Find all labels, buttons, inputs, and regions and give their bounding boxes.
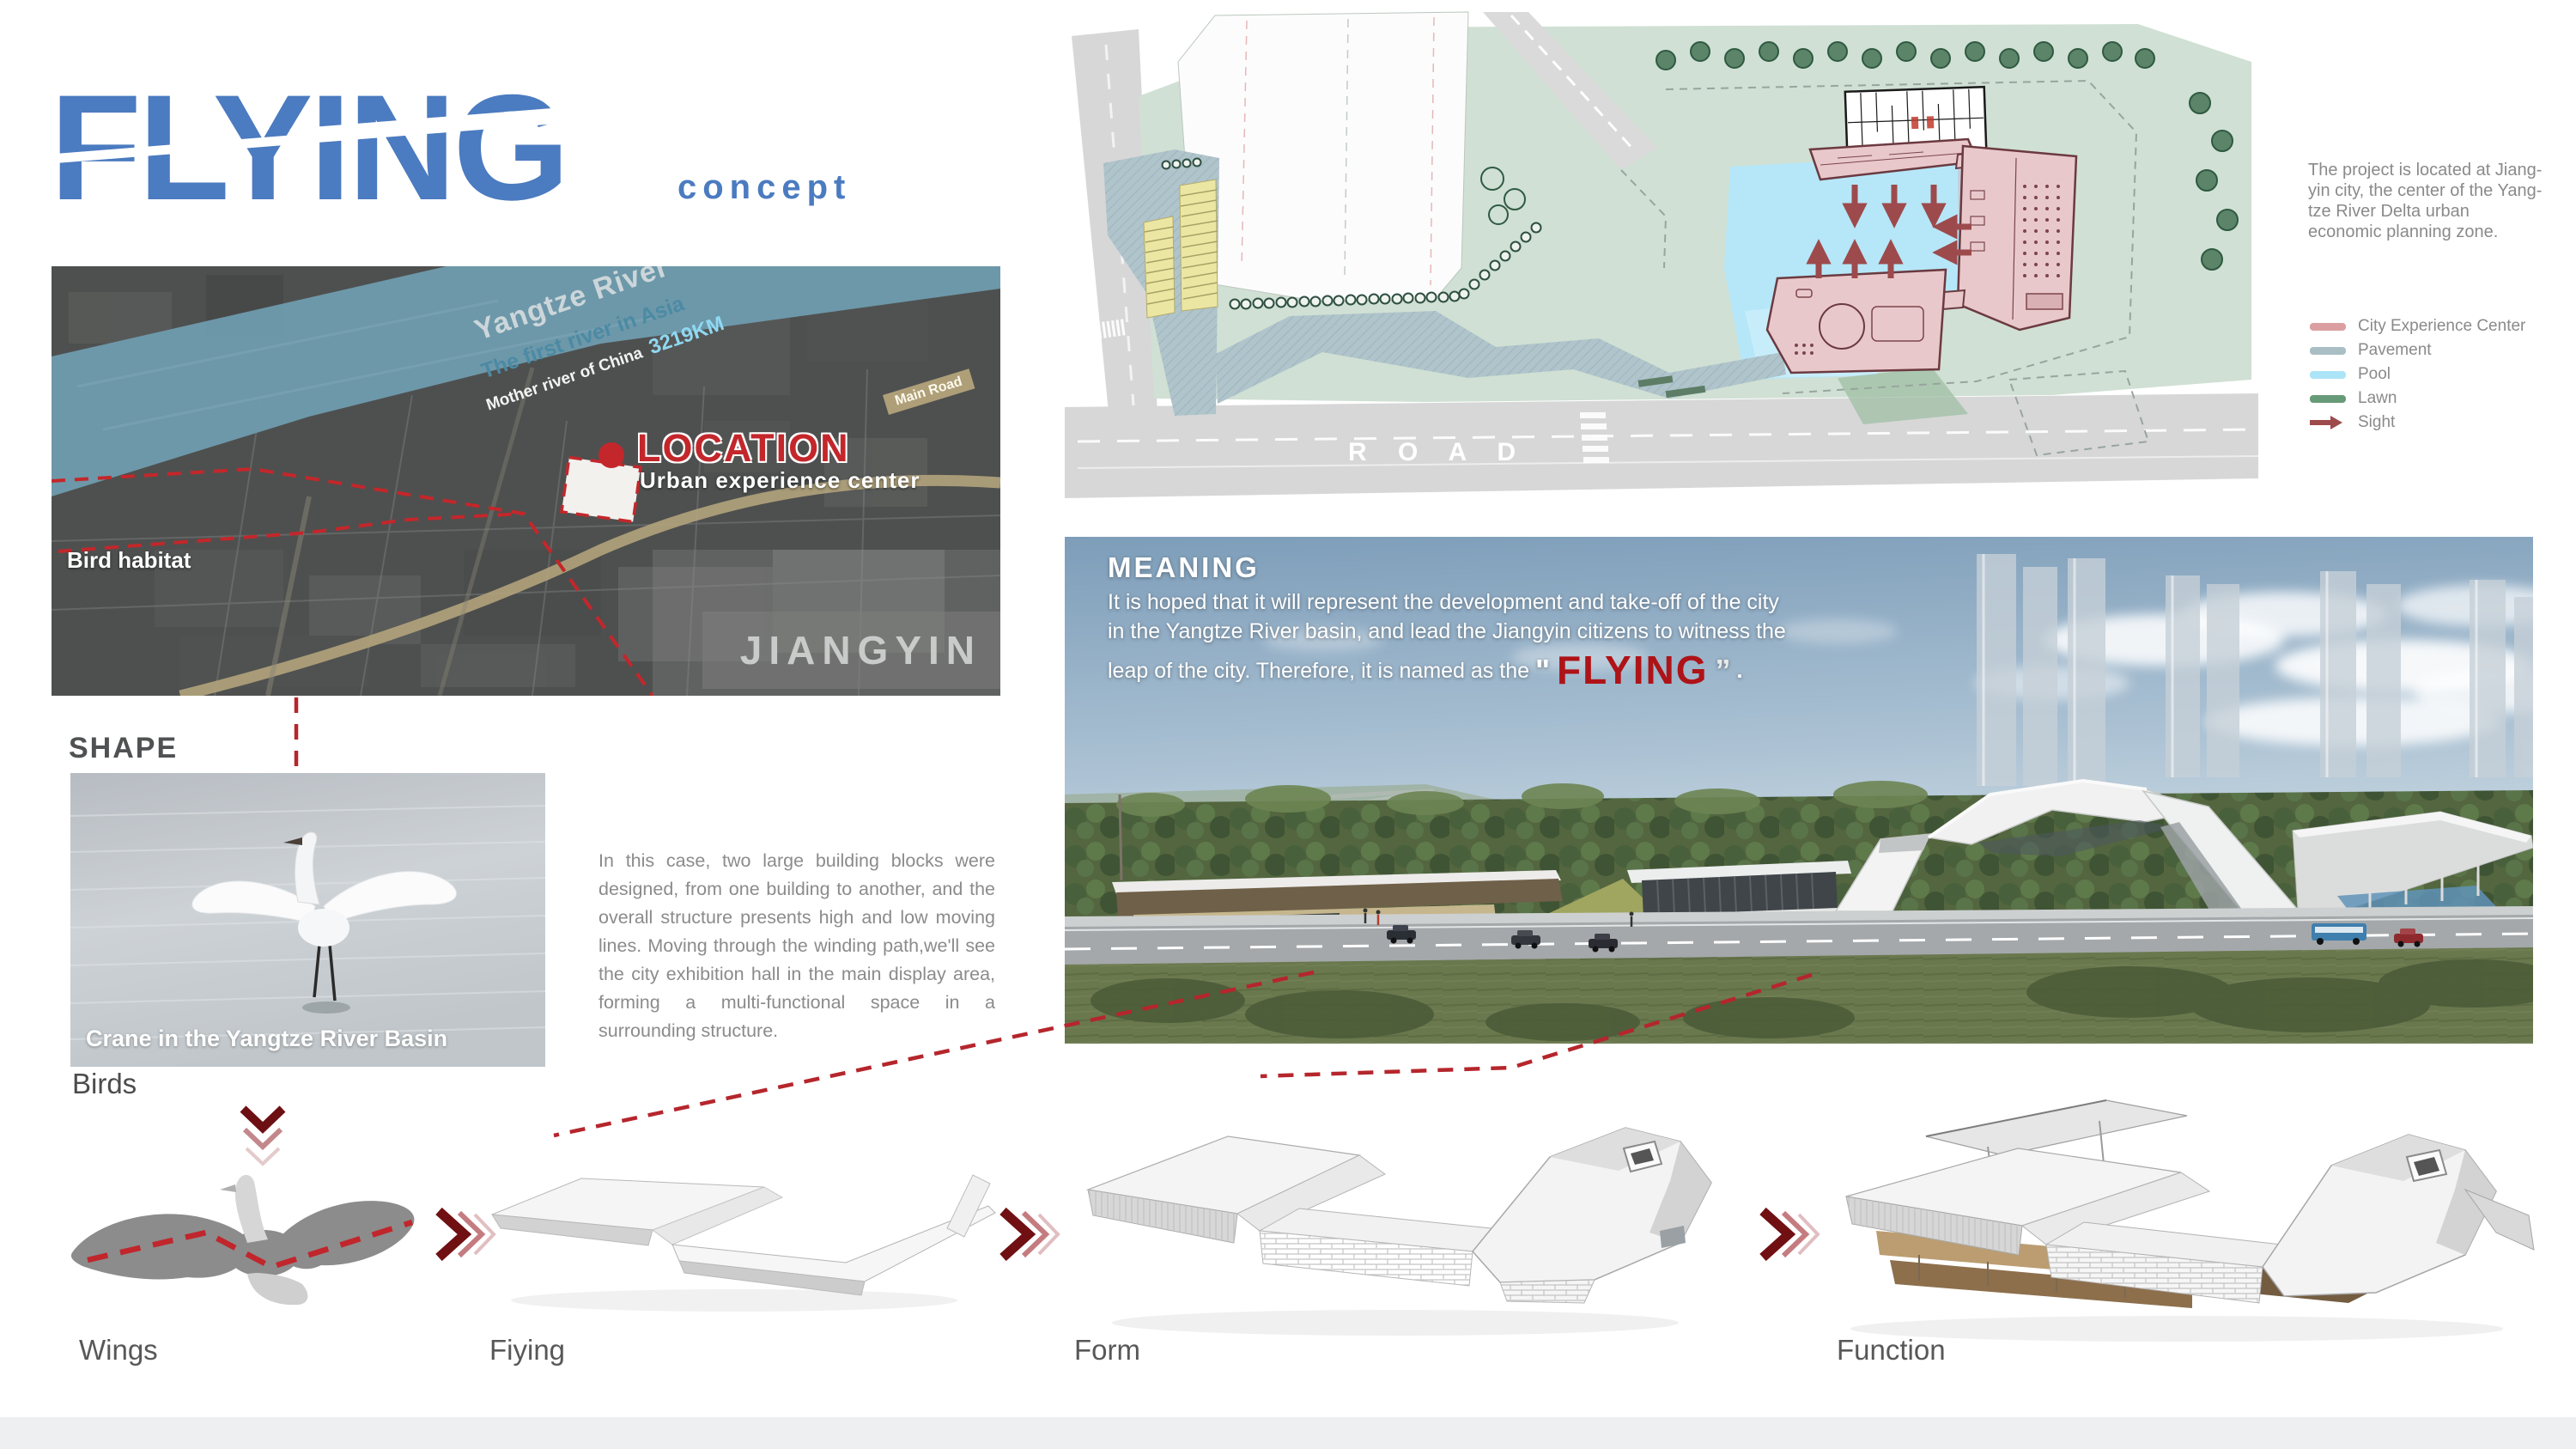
- chevron-right-icon: [996, 1201, 1063, 1268]
- logo-subtitle: concept: [677, 168, 851, 207]
- meaning-render: MEANING It is hoped that it will represe…: [1065, 537, 2533, 1044]
- city-name-badge: JIANGYIN: [702, 612, 1000, 689]
- location-title: LOCATION: [637, 426, 850, 471]
- courtyard: [1178, 12, 1468, 301]
- location-dot: [598, 442, 624, 468]
- poster-footer-strip: [0, 1417, 2576, 1449]
- legend-label: City Experience Center: [2358, 317, 2525, 336]
- site-plan-graphic: R O A D: [1065, 10, 2258, 510]
- legend-swatch: [2310, 347, 2346, 355]
- crane-photo-graphic: [70, 773, 545, 1067]
- legend-label: Pavement: [2358, 341, 2432, 360]
- south-road: [1065, 393, 2258, 498]
- step-label-function: Function: [1837, 1334, 1946, 1367]
- location-map: Yangtze River The first river in Asia Mo…: [52, 266, 1000, 696]
- flying-highlight: FLYING: [1557, 648, 1708, 692]
- meaning-line3: leap of the city. Therefore, it is named…: [1108, 647, 1742, 693]
- sight-arrow-icon: [2310, 416, 2346, 429]
- photo-caption: Crane in the Yangtze River Basin: [86, 1026, 537, 1052]
- sentence-period: .: [1736, 659, 1742, 683]
- legend-label: Lawn: [2358, 389, 2397, 408]
- legend-label: Pool: [2358, 365, 2391, 384]
- step-label-form: Form: [1074, 1334, 1140, 1367]
- shape-description: In this case, two large building blocks …: [598, 847, 995, 1045]
- location-subtitle: Urban experience center: [640, 467, 920, 494]
- meaning-line2: in the Yangtze River basin, and lead the…: [1108, 619, 1786, 644]
- shape-heading: SHAPE: [69, 732, 178, 765]
- site-marker-square: [562, 457, 641, 521]
- legend-swatch: [2310, 371, 2346, 379]
- form-diagram: [1069, 1104, 1730, 1349]
- function-diagram: [1816, 1087, 2542, 1349]
- legend-label: Sight: [2358, 413, 2395, 432]
- road-label: R O A D: [1348, 438, 1528, 466]
- legend-item-lawn: Lawn: [2310, 387, 2567, 411]
- meaning-line1: It is hoped that it will represent the d…: [1108, 590, 1779, 615]
- fiying-diagram: [477, 1161, 1009, 1324]
- legend-item-pool: Pool: [2310, 362, 2567, 387]
- crane-photo: Crane in the Yangtze River Basin: [70, 773, 545, 1067]
- legend-swatch: [2310, 395, 2346, 403]
- bird-habitat-label: Bird habitat: [67, 547, 191, 574]
- close-quote: ”: [1715, 653, 1730, 688]
- step-label-wings: Wings: [79, 1334, 158, 1367]
- open-quote: ": [1535, 653, 1550, 688]
- site-plan: R O A D: [1065, 10, 2258, 510]
- birds-label: Birds: [72, 1068, 137, 1100]
- legend-item-sight: Sight: [2310, 411, 2567, 435]
- project-description: The project is located at Jiang-yin city…: [2308, 160, 2545, 242]
- plan-legend: City Experience Center Pavement Pool Law…: [2310, 314, 2567, 435]
- concept-poster-board: FLYING concept: [0, 0, 2576, 1449]
- legend-item-city-experience-center: City Experience Center: [2310, 314, 2567, 338]
- wings-diagram: [52, 1147, 421, 1331]
- meaning-line3-text: leap of the city. Therefore, it is named…: [1108, 659, 1529, 683]
- meaning-heading: MEANING: [1108, 551, 1260, 584]
- step-label-fiying: Fiying: [489, 1334, 565, 1367]
- chevron-right-icon: [1756, 1201, 1823, 1268]
- legend-item-pavement: Pavement: [2310, 338, 2567, 362]
- legend-swatch: [2310, 323, 2346, 331]
